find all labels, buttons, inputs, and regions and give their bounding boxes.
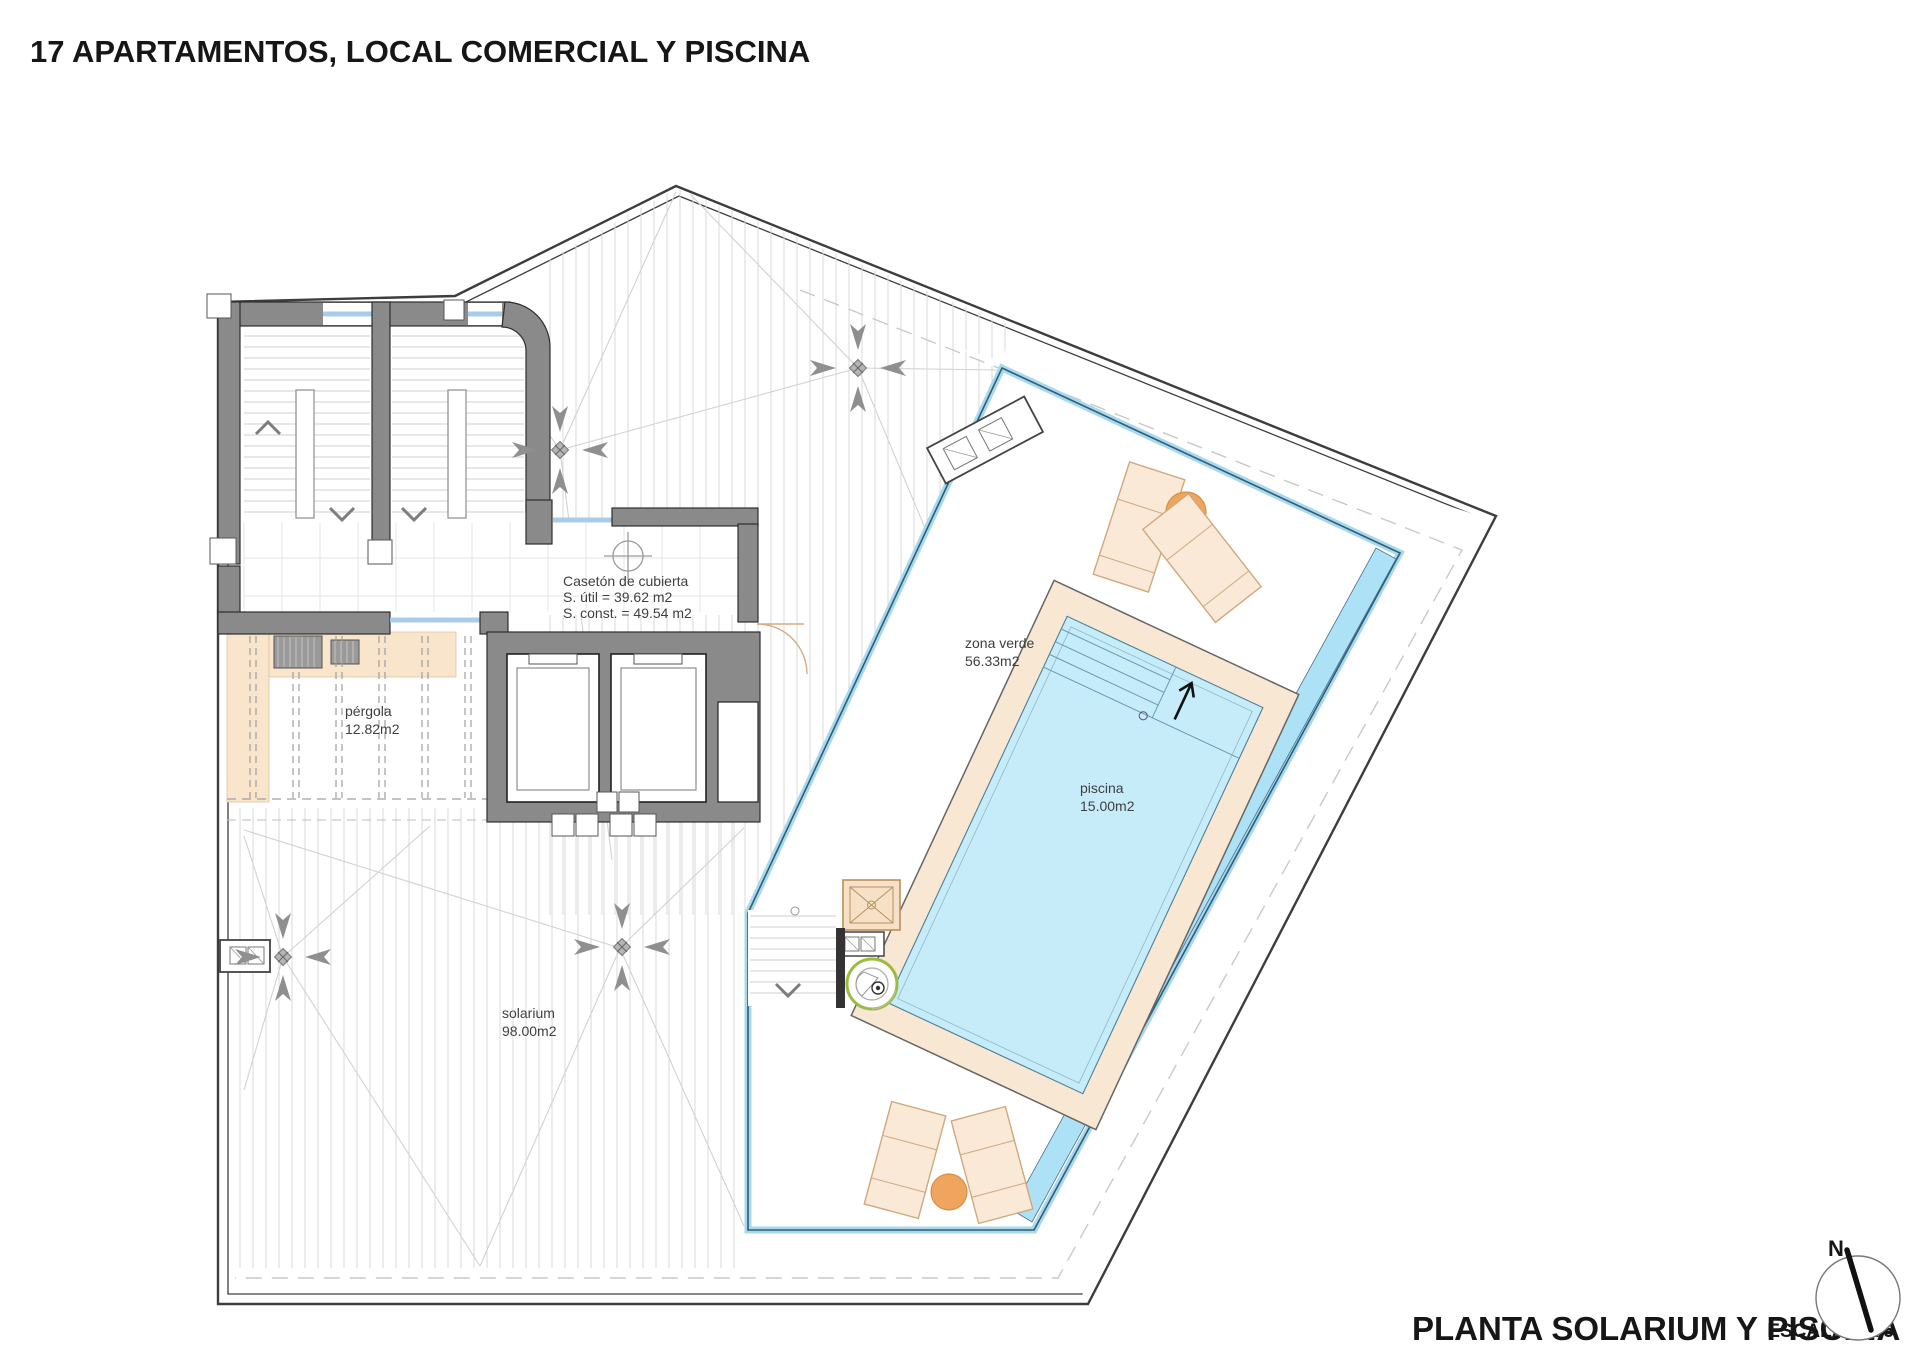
vent <box>552 814 574 836</box>
elevator-cabin <box>507 654 599 802</box>
svg-text:piscina: piscina <box>1080 780 1124 796</box>
column-marker <box>368 540 392 564</box>
vent <box>576 814 598 836</box>
svg-text:zona verde: zona verde <box>965 635 1034 651</box>
vent <box>610 814 632 836</box>
svg-text:solarium: solarium <box>502 1005 555 1021</box>
wall-caseton-north <box>612 508 758 526</box>
svg-text:98.00m2: 98.00m2 <box>502 1023 557 1039</box>
column-marker <box>444 300 464 320</box>
north-compass-icon: N <box>1816 1236 1900 1340</box>
wall-caseton-south <box>218 612 390 634</box>
vent <box>597 792 617 812</box>
planter-square <box>843 880 900 930</box>
svg-text:S. útil = 39.62 m2: S. útil = 39.62 m2 <box>563 589 673 605</box>
svg-text:12.82m2: 12.82m2 <box>345 721 400 737</box>
column-marker <box>210 538 236 564</box>
pool-stairs <box>748 907 845 1008</box>
stair-wall <box>836 928 845 1008</box>
svg-text:56.33m2: 56.33m2 <box>965 653 1020 669</box>
vent <box>634 814 656 836</box>
wall-caseton-east <box>738 524 758 622</box>
page-title: 17 APARTAMENTOS, LOCAL COMERCIAL Y PISCI… <box>30 34 810 69</box>
plan-canvas: 17 APARTAMENTOS, LOCAL COMERCIAL Y PISCI… <box>0 0 1920 1357</box>
svg-text:pérgola: pérgola <box>345 703 392 719</box>
vent <box>619 792 639 812</box>
elevator-cabin <box>611 654 706 802</box>
svg-text:N: N <box>1828 1236 1844 1261</box>
svg-text:15.00m2: 15.00m2 <box>1080 798 1135 814</box>
shower-icon <box>847 959 897 1009</box>
wall-caseton-south-east <box>480 612 508 634</box>
wall-corner-piece <box>526 500 552 544</box>
wall-left <box>218 302 240 564</box>
floor-plan-page: { "title": "17 APARTAMENTOS, LOCAL COMER… <box>0 0 1920 1357</box>
shaft-niche <box>718 702 758 802</box>
stair-rail <box>296 390 314 518</box>
side-table <box>931 1174 967 1210</box>
wall-middle <box>372 302 390 546</box>
stair-rail <box>448 390 466 518</box>
svg-text:Casetón de cubierta: Casetón de cubierta <box>563 573 689 589</box>
elevator-block <box>487 632 760 836</box>
svg-text:S. const. = 49.54 m2: S. const. = 49.54 m2 <box>563 605 692 621</box>
column-marker <box>207 294 231 318</box>
pergola-unit-icon <box>274 636 322 668</box>
